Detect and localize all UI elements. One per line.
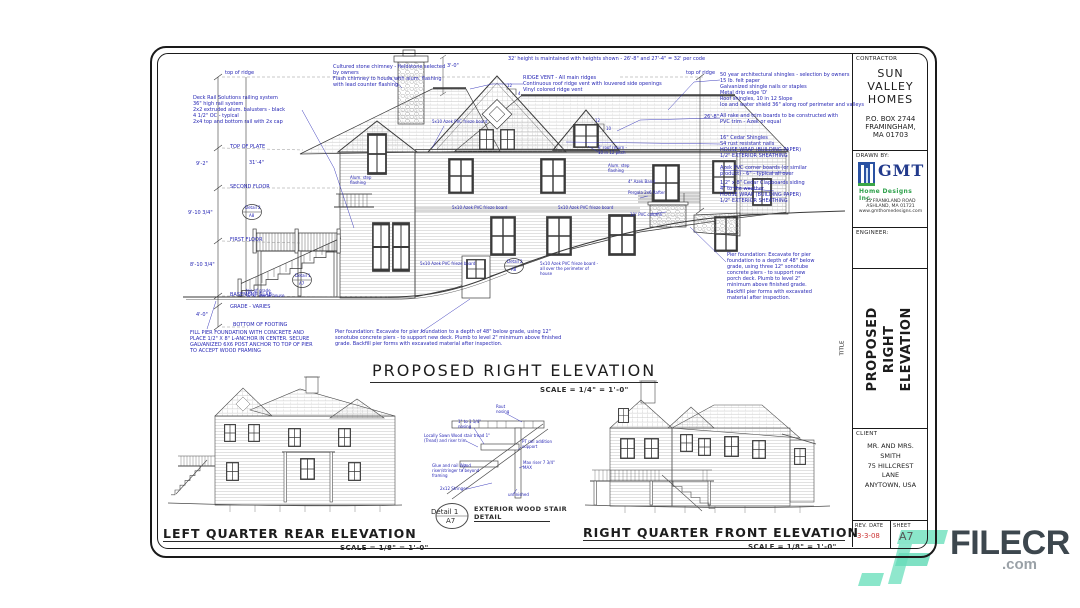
dim-9-10: 9'-10 3/4" — [188, 210, 213, 216]
label-step-flashing-1: Alum. step flashing — [350, 176, 371, 186]
detail2-ref-a: Detail 2 — [245, 205, 261, 210]
dim-4-0: 4'-0" — [196, 312, 208, 318]
dim-first-floor: FIRST FLOOR — [230, 237, 262, 243]
detail1-ref-a: Detail 1 — [295, 273, 311, 278]
title-label: TITLE — [839, 341, 845, 356]
title-block-title-section: TITLE PROPOSED RIGHT ELEVATION — [853, 268, 928, 429]
dim-top-of-ridge-right: top of ridge — [686, 70, 715, 76]
note-clapboards: 1/2" x 8" Cedar Clapboards siding 4" to … — [720, 180, 805, 204]
stair-note-tread: Locally Sawn Wood stair tread 1" (Tread)… — [424, 434, 490, 444]
title-block-contractor-section: CONTRACTOR SUN VALLEY HOMES P.O. BOX 274… — [853, 53, 928, 150]
title-block-drawnby-section: DRAWN BY: GMT Home Designs Inc. 35 FRANK… — [853, 150, 928, 228]
note-rake: All rake and trim boards to be construct… — [720, 113, 838, 125]
dim-26-8: 26'-8" — [704, 114, 719, 120]
label-pergola: Pergola 2x6 Rafter — [628, 190, 665, 195]
detail2-sheet-a: A8 — [249, 213, 254, 218]
note-cedar-shingles: 16" Cedar Shingles S4 rust resistant nai… — [720, 135, 801, 159]
note-pier-bottom: Pier foundation: Excavate for pier found… — [335, 329, 561, 347]
label-top-of-grade: top of grade 12'-0" below house — [246, 289, 284, 299]
stair-note-nosing: 1" to 1 1/4" nosing — [458, 420, 481, 430]
pitch-12-b: 12 — [595, 118, 600, 123]
title-block-engineer-section: ENGINEER: — [853, 227, 928, 269]
sheet-value: A7 — [899, 530, 914, 543]
stair-note-stringer: 2x12 Stringer — [440, 486, 467, 491]
detail-ref-sheet: A7 — [446, 517, 455, 525]
dim-8-10: 8'-10 3/4" — [190, 262, 215, 268]
stair-note-rout: Rout nosing — [496, 405, 509, 415]
label-frieze-3: 5x10 Azek PVC frieze board — [558, 205, 613, 210]
pitch-12-a: 12 — [507, 83, 512, 88]
note-fill-pier: FILL PIER FOUNDATION WITH CONCRETE AND P… — [190, 330, 313, 354]
contractor-address: P.O. BOX 2744 FRAMINGHAM, MA 01703 — [853, 115, 928, 139]
sheet-label: SHEET — [893, 523, 911, 529]
dim-second-floor: SECOND FLOOR — [230, 184, 270, 190]
right-front-title: RIGHT QUARTER FRONT ELEVATION — [583, 525, 859, 540]
rev-date-value: 3-3-08 — [857, 532, 880, 540]
label-frieze-1: 5x10 Azek PVC frieze board — [432, 119, 487, 124]
label-roof-return: 8' roof return - 10 in 12 pitch — [598, 146, 627, 156]
note-deck-rail: Deck Rail Solutions railing system 36" h… — [193, 95, 285, 125]
label-frieze-perimeter: 5x10 Azek PVC frieze board - all over th… — [540, 262, 598, 277]
label-frieze-2: 5x10 Azek PVC frieze board — [452, 205, 507, 210]
dim-3-0: 3'-0" — [447, 63, 459, 69]
pitch-4: 4 — [518, 91, 521, 96]
note-ridge-vent: RIDGE VENT - All main ridges Continuous … — [523, 75, 662, 93]
detail2-ref-b: Detail 2 — [507, 259, 523, 264]
gmt-logo-text: GMT — [878, 161, 924, 180]
main-elevation-scale: SCALE = 1/4" = 1'-0" — [540, 386, 629, 394]
engineer-label: ENGINEER: — [856, 230, 889, 236]
stair-note-rail-support: PT rail addition support — [522, 440, 552, 450]
dim-grade-varies: GRADE - VARIES — [230, 304, 270, 310]
detail1-sheet-a: A7 — [299, 281, 304, 286]
client-text: MR. AND MRS. SMITH 75 HILLCREST LANE ANY… — [853, 442, 928, 491]
stair-note-glue: Glue and nail Wood riser/stringer to bey… — [432, 464, 479, 479]
gmt-logo-address: 35 FRANKLAND ROAD ASHLAND, MA 01721 www.… — [853, 199, 928, 214]
label-azek-band: 4" Azek Band — [628, 179, 655, 184]
title-block: CONTRACTOR SUN VALLEY HOMES P.O. BOX 274… — [852, 53, 928, 547]
dim-top-of-plate: TOP OF PLATE — [230, 144, 265, 150]
stair-note-unfinished: unfinished — [508, 492, 529, 497]
stair-note-riser: Max riser 7 3/4" MAX — [523, 461, 555, 471]
main-elevation-title: PROPOSED RIGHT ELEVATION — [372, 361, 656, 380]
client-label: CLIENT — [856, 431, 877, 437]
sheet-inner-border — [157, 53, 928, 549]
pitch-10: 10 — [606, 126, 611, 131]
detail-title: EXTERIOR WOOD STAIR DETAIL — [474, 505, 567, 521]
note-height-code: 32' height is maintained with heights sh… — [508, 56, 705, 62]
drawing-sheet-screenshot: CONTRACTOR SUN VALLEY HOMES P.O. BOX 274… — [0, 0, 1080, 608]
left-rear-title: LEFT QUARTER REAR ELEVATION — [163, 526, 417, 541]
title-text: PROPOSED RIGHT ELEVATION — [865, 307, 916, 391]
label-frieze-4: 5x10 Azek PVC frieze board — [420, 261, 475, 266]
right-front-underline — [583, 540, 845, 541]
note-corner-boards: Azek PVC corner boards (or similar produ… — [720, 165, 807, 177]
left-rear-underline — [163, 541, 421, 542]
dim-31-4: 31'-4" — [249, 160, 264, 166]
label-step-flashing-2: Alum. step flashing — [608, 164, 629, 174]
dim-9-2: 9'-2" — [196, 161, 208, 167]
right-front-scale: SCALE = 1/8" = 1'-0" — [748, 543, 837, 551]
note-chimney: Cultured stone chimney - fieldstone sele… — [333, 64, 445, 88]
rev-date-label: REV. DATE — [855, 523, 883, 529]
detail2-sheet-b: A8 — [511, 267, 516, 272]
detail-ref-name: Detail 1 — [431, 508, 458, 516]
left-rear-scale: SCALE = 1/8" = 1'-0" — [340, 544, 429, 552]
title-block-client-section: CLIENT MR. AND MRS. SMITH 75 HILLCREST L… — [853, 428, 928, 521]
main-title-underline — [370, 382, 658, 383]
contractor-label: CONTRACTOR — [856, 56, 897, 62]
detail-title-underline — [474, 521, 550, 522]
label-pvc-column: 10" PVC column — [630, 212, 662, 217]
dim-top-of-ridge-left: top of ridge — [225, 70, 254, 76]
title-block-rev-section: REV. DATE 3-3-08 SHEET A7 — [853, 520, 928, 548]
gmt-logo-icon — [858, 162, 875, 186]
dim-bottom-of-footing: BOTTOM OF FOOTING — [233, 322, 287, 328]
drawn-by-label: DRAWN BY: — [856, 153, 889, 159]
contractor-name: SUN VALLEY HOMES — [853, 67, 928, 106]
watermark-tld-text: .com — [1002, 556, 1037, 573]
note-shingles: 50 year architectural shingles - selecti… — [720, 72, 864, 109]
note-pier-right: Pier foundation: Excavate for pier found… — [727, 252, 814, 301]
